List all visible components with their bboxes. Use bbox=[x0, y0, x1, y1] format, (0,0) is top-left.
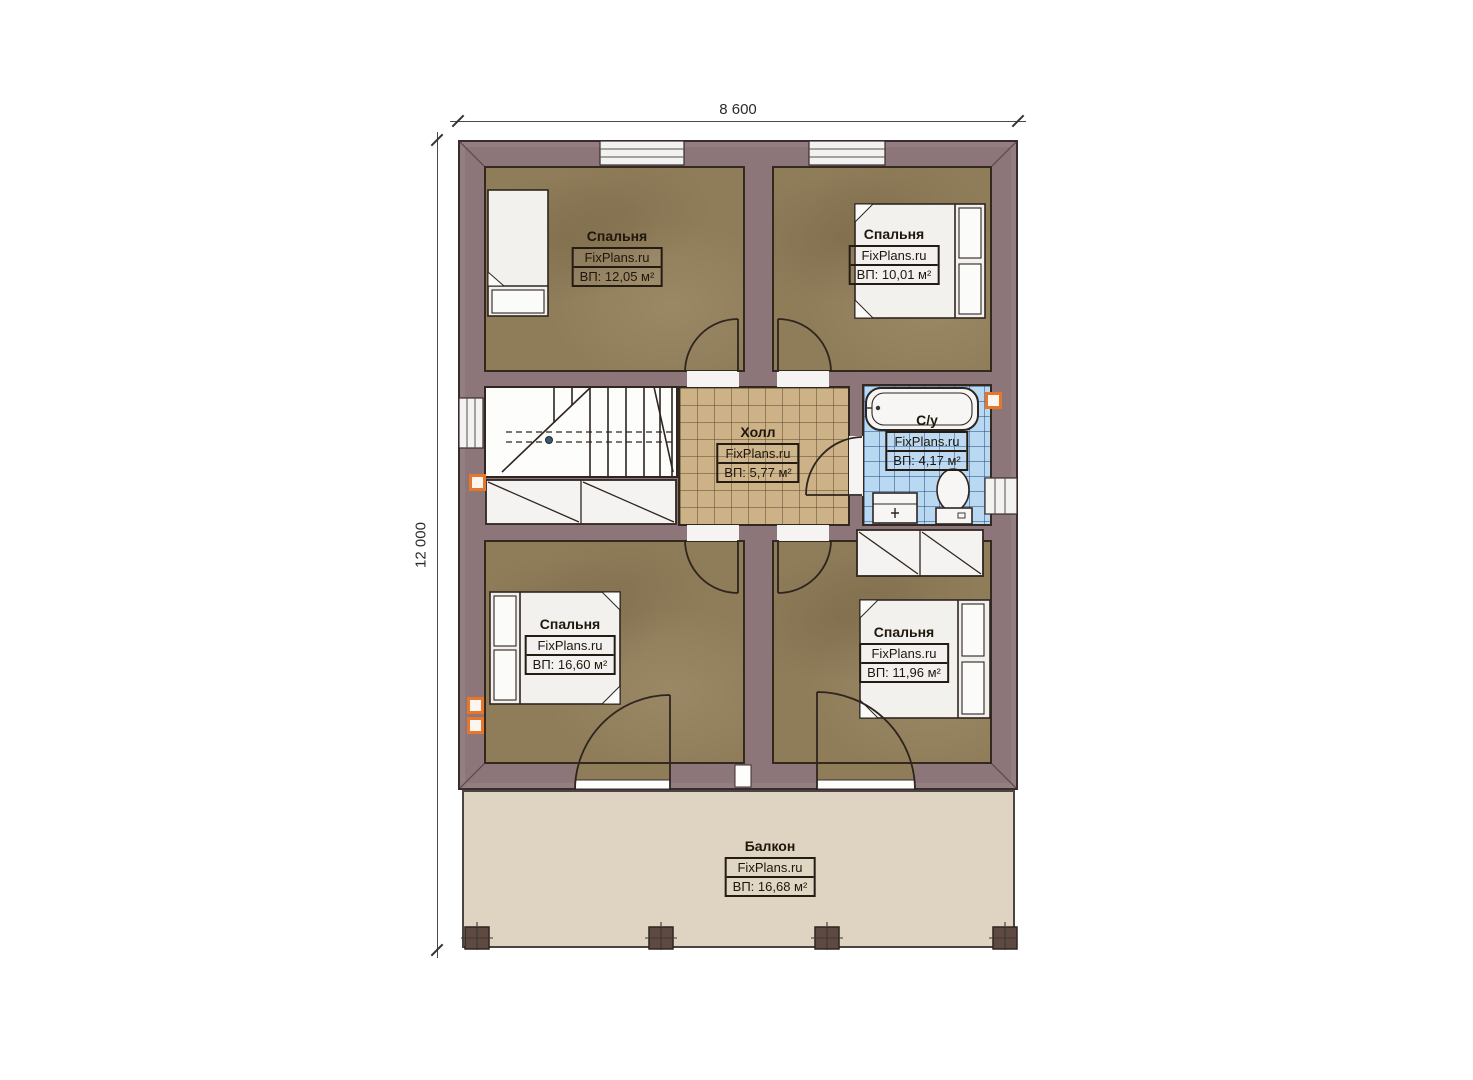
room-title: Спальня bbox=[572, 228, 663, 244]
room-info-box: FixPlans.ru ВП: 11,96 м² bbox=[859, 643, 949, 683]
room-label-bedroom-top-right: Спальня FixPlans.ru ВП: 10,01 м² bbox=[849, 226, 940, 285]
room-label-bedroom-top-left: Спальня FixPlans.ru ВП: 12,05 м² bbox=[572, 228, 663, 287]
room-watermark: FixPlans.ru bbox=[718, 445, 797, 462]
dimension-line-top bbox=[450, 121, 1026, 122]
room-label-bathroom: С/у FixPlans.ru ВП: 4,17 м² bbox=[885, 412, 968, 471]
room-title: С/у bbox=[885, 412, 968, 428]
room-label-hall: Холл FixPlans.ru ВП: 5,77 м² bbox=[716, 424, 799, 483]
bathroom-wall bbox=[850, 372, 862, 540]
room-label-bedroom-bottom-left: Спальня FixPlans.ru ВП: 16,60 м² bbox=[525, 616, 616, 675]
room-title: Спальня bbox=[859, 624, 949, 640]
dimension-width-label: 8 600 bbox=[458, 101, 1018, 118]
room-area: ВП: 16,68 м² bbox=[727, 876, 814, 895]
room-info-box: FixPlans.ru ВП: 12,05 м² bbox=[572, 247, 663, 287]
room-area: ВП: 16,60 м² bbox=[527, 654, 614, 673]
room-title: Спальня bbox=[849, 226, 940, 242]
room-title: Балкон bbox=[725, 838, 816, 854]
outlet-marker bbox=[467, 697, 484, 714]
room-info-box: FixPlans.ru ВП: 4,17 м² bbox=[885, 431, 968, 471]
room-watermark: FixPlans.ru bbox=[574, 249, 661, 266]
outlet-marker bbox=[985, 392, 1002, 409]
room-watermark: FixPlans.ru bbox=[851, 247, 938, 264]
room-title: Спальня bbox=[525, 616, 616, 632]
center-wall-top bbox=[745, 166, 772, 386]
room-area: ВП: 11,96 м² bbox=[861, 662, 947, 681]
room-area: ВП: 12,05 м² bbox=[574, 266, 661, 285]
room-watermark: FixPlans.ru bbox=[887, 433, 966, 450]
dimension-line-left bbox=[437, 132, 438, 958]
room-title: Холл bbox=[716, 424, 799, 440]
outlet-marker bbox=[469, 474, 486, 491]
room-area: ВП: 4,17 м² bbox=[887, 450, 966, 469]
room-area: ВП: 10,01 м² bbox=[851, 264, 938, 283]
room-watermark: FixPlans.ru bbox=[527, 637, 614, 654]
floor-plan-page: 8 600 12 000 bbox=[0, 0, 1473, 1080]
stairwell bbox=[484, 386, 678, 478]
room-watermark: FixPlans.ru bbox=[861, 645, 947, 662]
room-info-box: FixPlans.ru ВП: 5,77 м² bbox=[716, 443, 799, 483]
room-info-box: FixPlans.ru ВП: 16,68 м² bbox=[725, 857, 816, 897]
dimension-depth-label: 12 000 bbox=[413, 522, 430, 568]
room-label-balcony: Балкон FixPlans.ru ВП: 16,68 м² bbox=[725, 838, 816, 897]
room-info-box: FixPlans.ru ВП: 10,01 м² bbox=[849, 245, 940, 285]
room-info-box: FixPlans.ru ВП: 16,60 м² bbox=[525, 635, 616, 675]
outlet-marker bbox=[467, 717, 484, 734]
room-watermark: FixPlans.ru bbox=[727, 859, 814, 876]
center-wall-bottom bbox=[745, 526, 772, 764]
room-label-bedroom-bottom-right: Спальня FixPlans.ru ВП: 11,96 м² bbox=[859, 624, 949, 683]
room-area: ВП: 5,77 м² bbox=[718, 462, 797, 481]
floor-plan: Спальня FixPlans.ru ВП: 12,05 м² Спальня… bbox=[458, 140, 1018, 950]
